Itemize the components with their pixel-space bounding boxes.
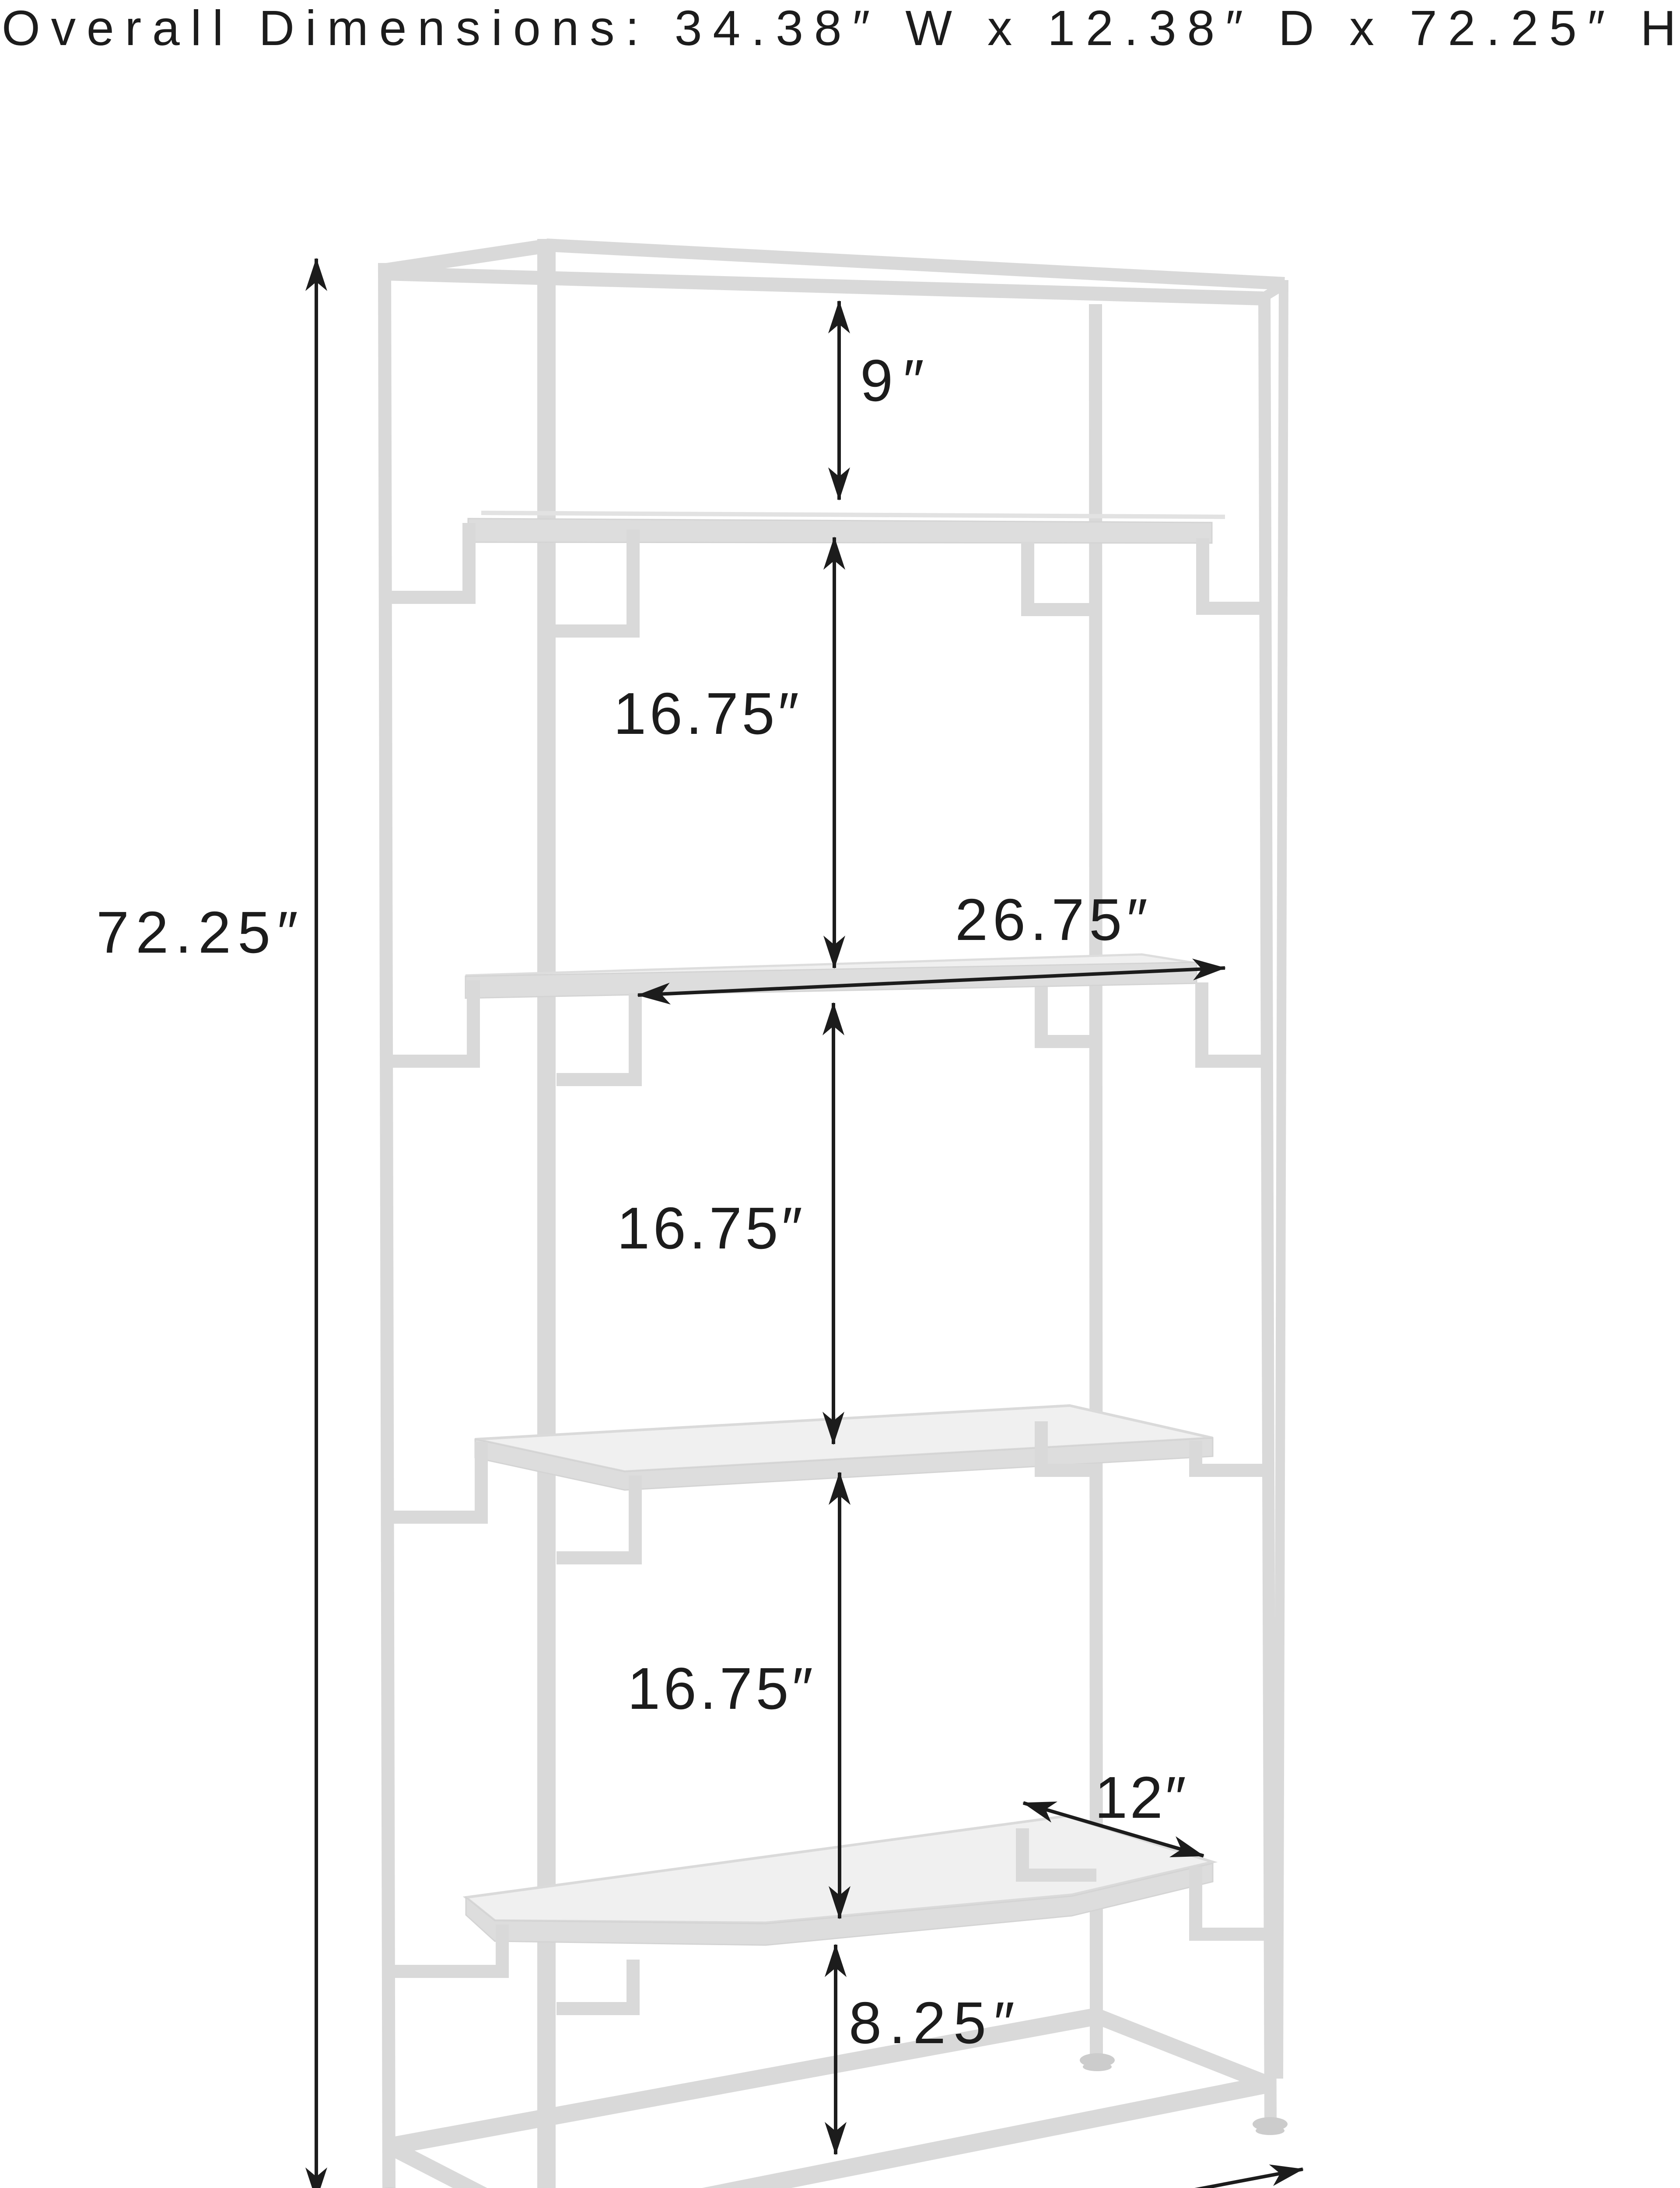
svg-text:16.75″: 16.75″ (617, 1195, 802, 1261)
svg-text:16.75″: 16.75″ (613, 680, 799, 747)
svg-text:12″: 12″ (1095, 1764, 1186, 1830)
svg-text:26.75″: 26.75″ (955, 887, 1148, 953)
svg-text:16.75″: 16.75″ (627, 1655, 813, 1722)
svg-text:9″: 9″ (860, 347, 924, 414)
